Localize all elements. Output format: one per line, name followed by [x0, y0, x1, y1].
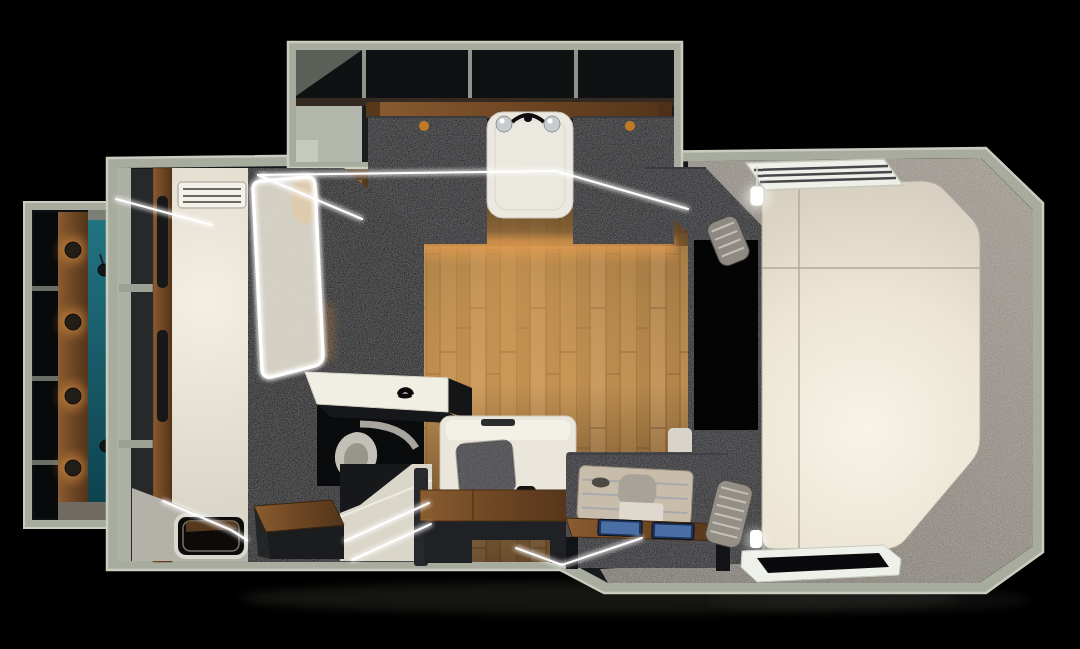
faucet-knob-right — [544, 116, 560, 132]
counter-end-left — [366, 102, 380, 118]
device-screen-left-group — [598, 519, 643, 537]
downlight-right — [625, 121, 635, 131]
seat-cushion-group — [456, 440, 516, 497]
faucet-knob-left — [496, 116, 512, 132]
bench-wood-seat — [420, 490, 572, 521]
wardrobe-slideout — [24, 202, 118, 528]
lamp-bulb — [750, 186, 764, 206]
galley-drawer — [566, 452, 731, 571]
seat-handle-slot — [481, 419, 515, 426]
bed-entry-doorway — [694, 240, 758, 430]
knob-highlight-left — [500, 119, 505, 124]
faucet-base — [524, 114, 532, 122]
pass-through-light-patch — [296, 140, 318, 162]
overhead-lockers — [296, 50, 674, 98]
bedside-light-bulb — [750, 530, 762, 548]
galley-tray-group — [577, 465, 694, 525]
rear-window — [741, 545, 901, 582]
bedside-light — [745, 529, 767, 551]
knob-highlight-right — [548, 119, 553, 124]
screen-right-display — [655, 524, 691, 537]
galley-leg-left — [566, 537, 578, 569]
seat-cushion — [456, 440, 516, 497]
device-screen-right-group — [652, 522, 695, 539]
slideout-compartments — [34, 212, 58, 518]
screen-left-display — [601, 521, 639, 534]
left-wall-face — [117, 168, 131, 561]
downlight-left — [419, 121, 429, 131]
slideout-bottom-strip — [58, 502, 112, 520]
vanity-faucet-base — [398, 394, 412, 399]
wood-stool — [254, 500, 344, 559]
counter-end-right — [658, 102, 672, 118]
floorplan-canvas — [0, 0, 1080, 649]
louvered-window — [746, 159, 903, 190]
door-glass-slot-2 — [157, 330, 168, 422]
floorplan-render — [0, 0, 1080, 649]
